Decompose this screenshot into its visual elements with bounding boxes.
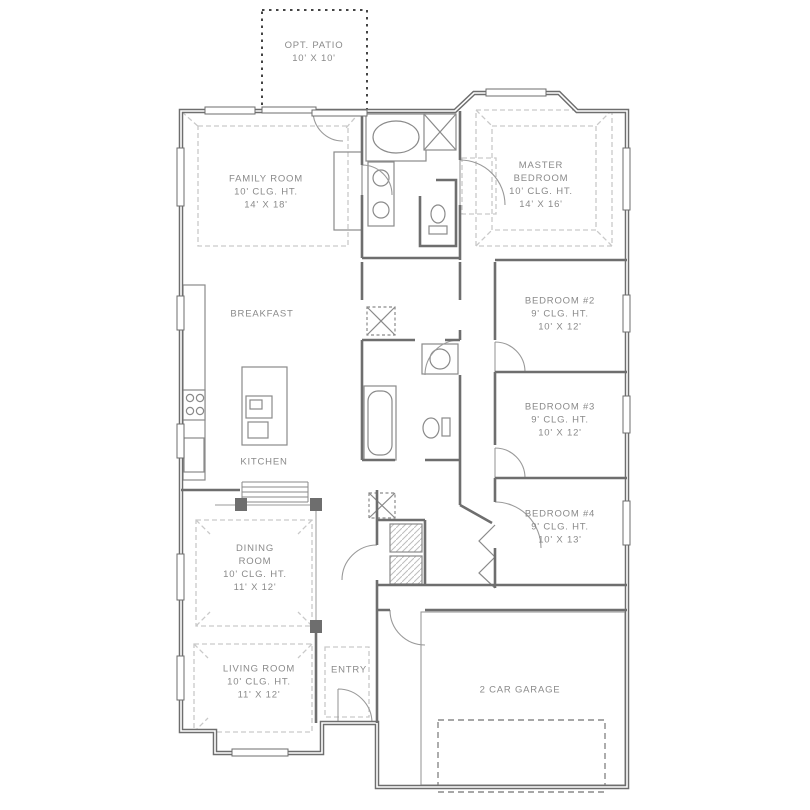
room-label-kitchen: KITCHEN [240,456,287,469]
room-label-garage: 2 CAR GARAGE [480,684,561,697]
vanity-sink-icon [422,344,458,374]
washer-dryer-icon [390,524,422,584]
room-label-master-bedroom: MASTER BEDROOM 10' CLG. HT. 14' X 16' [509,159,573,211]
room-label-entry: ENTRY [331,664,367,677]
built-in-shelves [242,482,308,502]
toilet-icon [429,205,447,234]
kitchen-island [242,367,287,445]
garage-interior-line [421,612,625,785]
toilet2-icon [423,418,450,438]
refrigerator-icon [184,438,204,472]
floor-plan-page: OPT. PATIO 10' X 10' FAMILY ROOM 10' CLG… [0,0,810,810]
room-label-bedroom-2: BEDROOM #2 9' CLG. HT. 10' X 12' [525,295,595,334]
bathtub2-icon [364,386,396,460]
shower-icon [424,114,456,150]
room-label-opt-patio: OPT. PATIO 10' X 10' [285,39,344,65]
room-label-bedroom-4: BEDROOM #4 9' CLG. HT. 10' X 13' [525,508,595,547]
door-swings [313,111,541,723]
bifold-closet-doors [479,525,495,588]
room-label-living-room: LIVING ROOM 10' CLG. HT. 11' X 12' [223,663,295,702]
room-label-bedroom-3: BEDROOM #3 9' CLG. HT. 10' X 12' [525,401,595,440]
room-label-family-room: FAMILY ROOM 10' CLG. HT. 14' X 18' [229,173,303,212]
room-label-breakfast: BREAKFAST [230,308,293,321]
floor-plan-drawing [0,0,810,810]
bathtub-icon [366,114,426,161]
garage-door-dashed [438,720,605,792]
cooktop-icon [183,390,205,420]
room-label-dining-room: DINING ROOM 10' CLG. HT. 11' X 12' [223,542,287,594]
